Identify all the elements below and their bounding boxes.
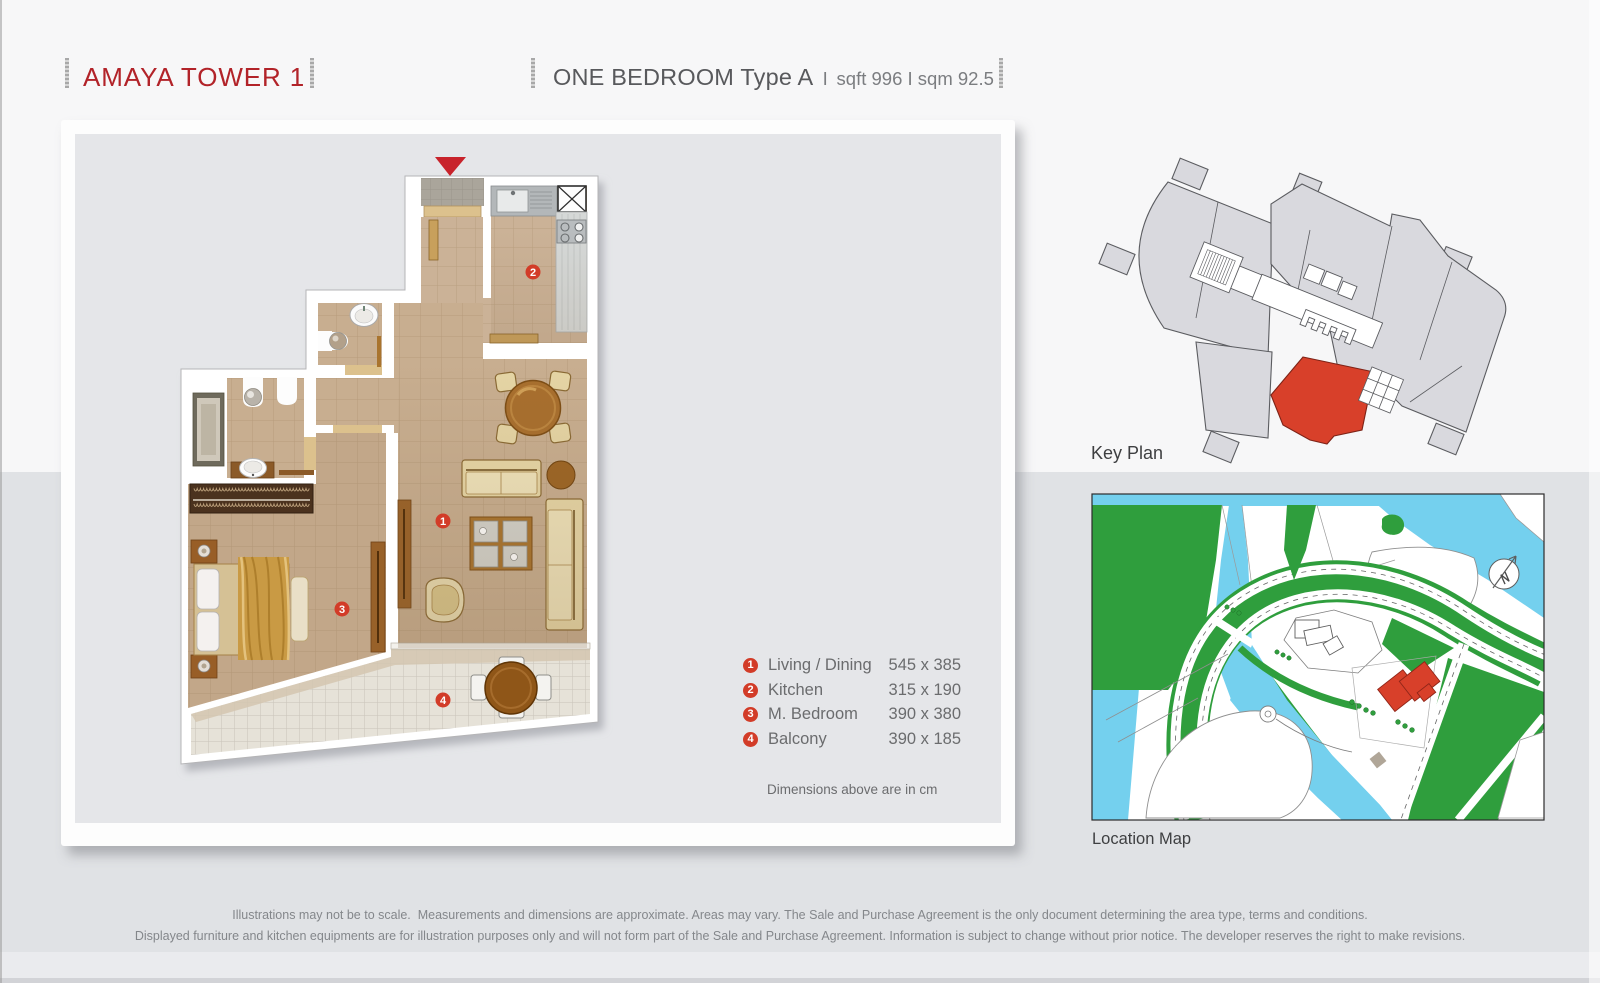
svg-text:2: 2	[530, 267, 536, 279]
svg-text:3: 3	[339, 604, 345, 616]
svg-text:1: 1	[440, 516, 446, 528]
svg-text:4: 4	[440, 695, 447, 707]
